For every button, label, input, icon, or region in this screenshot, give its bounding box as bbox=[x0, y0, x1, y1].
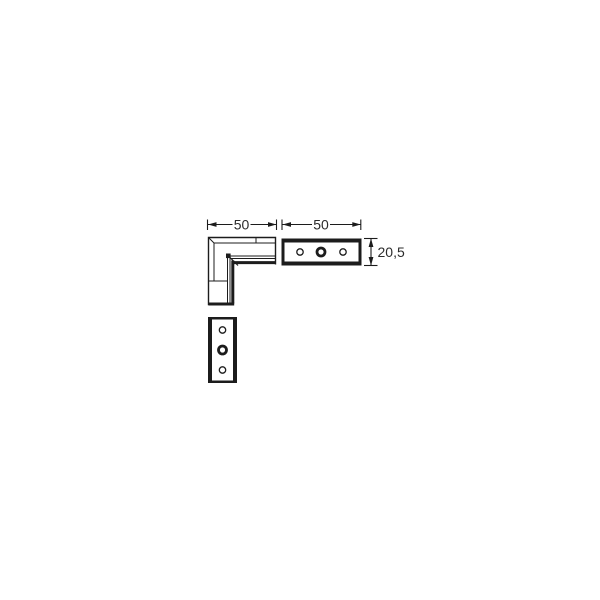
dimension-plate-width: 50 bbox=[282, 217, 361, 233]
dimension-plate-height: 20,5 bbox=[364, 239, 405, 266]
arrow-right bbox=[352, 222, 361, 227]
arrow-left bbox=[283, 222, 292, 227]
top-plate-side-view bbox=[282, 239, 362, 266]
arrow-up bbox=[369, 239, 374, 248]
plate-interior bbox=[212, 320, 233, 381]
plate-interior bbox=[285, 243, 359, 262]
corner-front-view bbox=[209, 238, 276, 306]
dimension-corner-width: 50 bbox=[208, 217, 278, 233]
dimension-label: 20,5 bbox=[378, 244, 405, 260]
arrow-down bbox=[369, 257, 374, 266]
arrow-left bbox=[208, 222, 217, 227]
corner-mitre-chamfer bbox=[209, 238, 215, 244]
dimension-label: 50 bbox=[234, 217, 250, 233]
corner-outer-outline bbox=[209, 238, 276, 306]
arrow-right bbox=[268, 222, 277, 227]
bottom-plate-view bbox=[208, 317, 237, 383]
dimension-label: 50 bbox=[313, 217, 329, 233]
drawing-canvas: 50 50 20,5 bbox=[0, 0, 600, 600]
technical-drawing: 50 50 20,5 bbox=[0, 0, 600, 600]
